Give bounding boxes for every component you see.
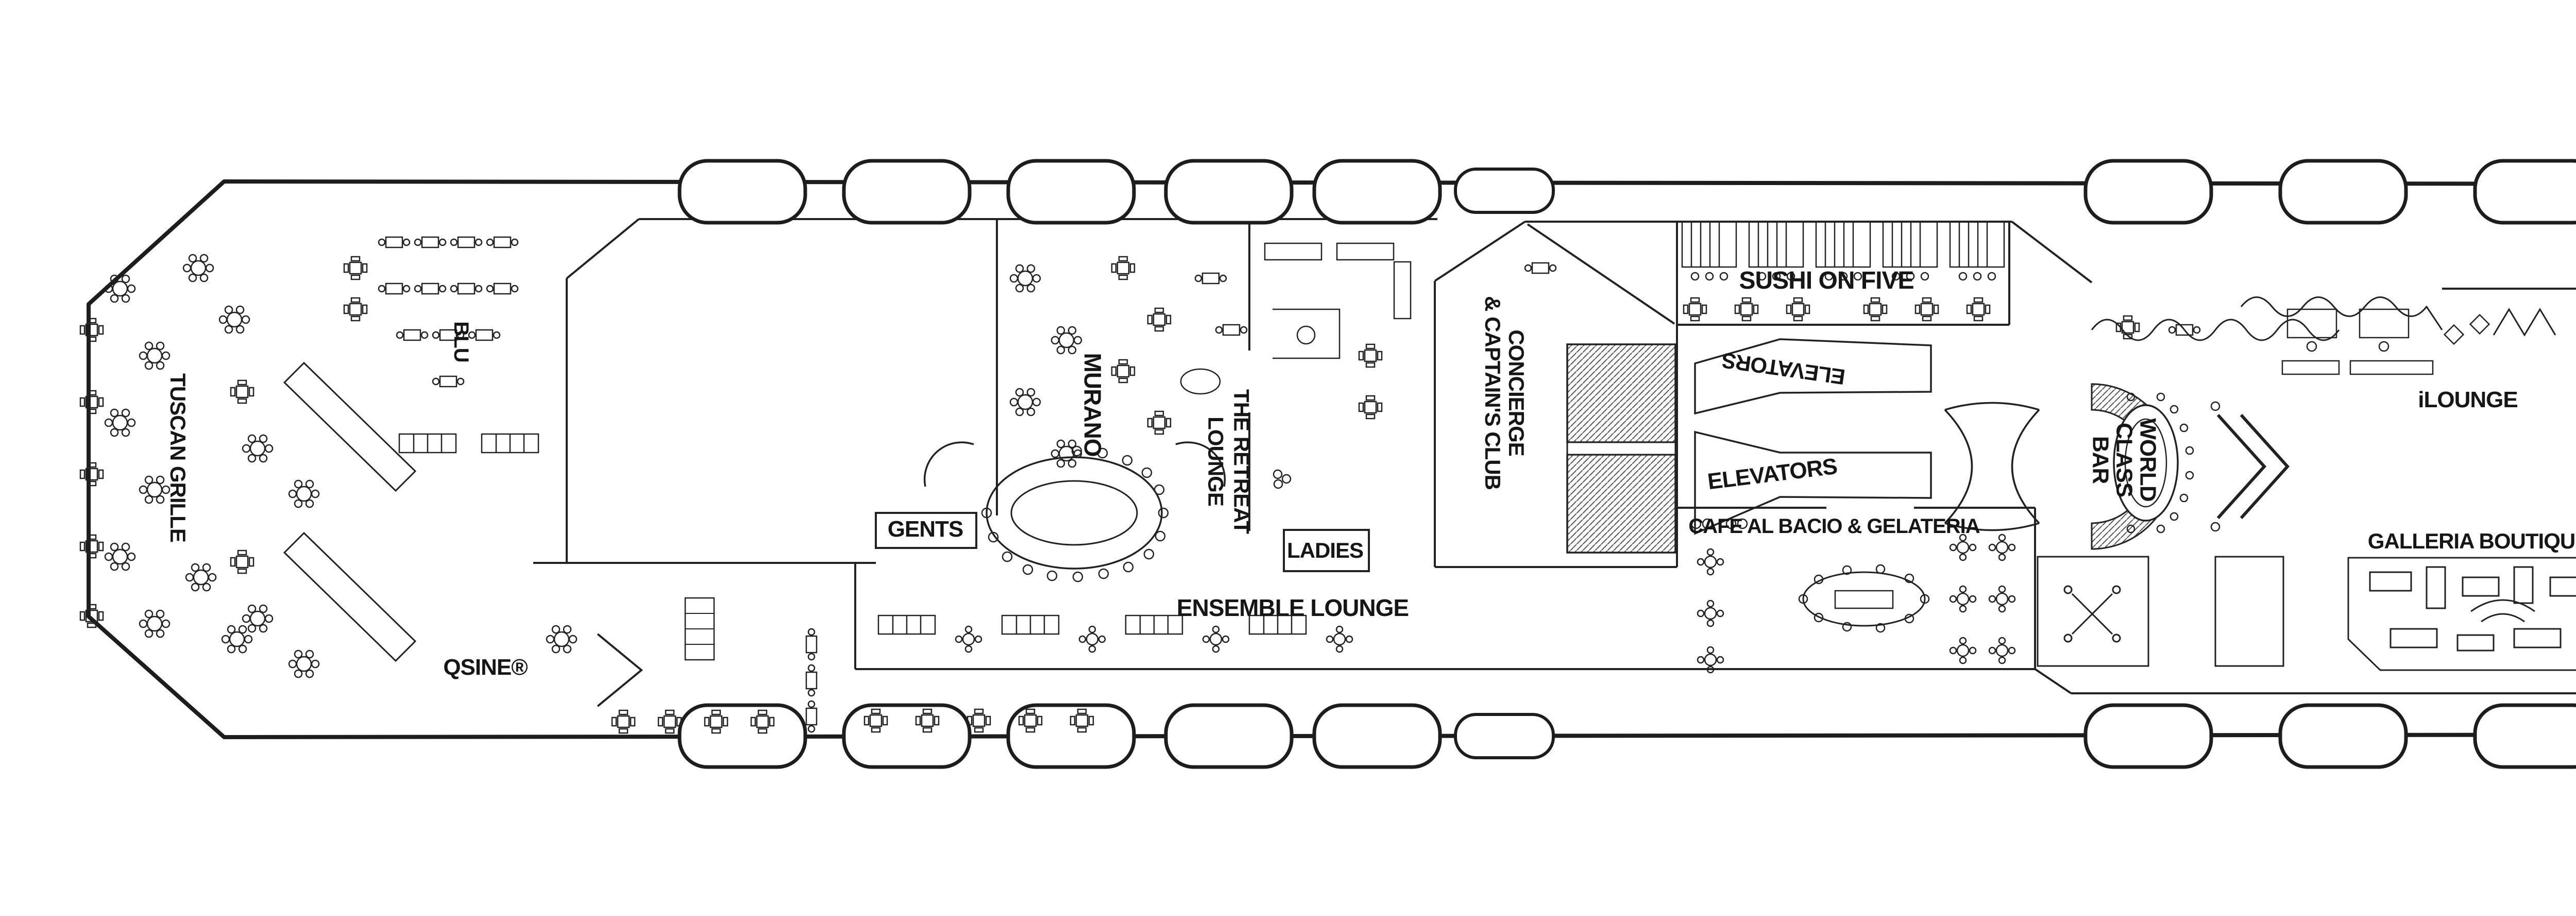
deck-plan-drawing — [0, 0, 2576, 916]
label-cafe-al-bacio: CAFE AL BACIO & GELATERIA — [1688, 516, 1979, 538]
label-ladies-aft: LADIES — [1287, 539, 1363, 562]
tender-boat — [1455, 169, 1553, 212]
label-galleria-boutiques-aft: GALLERIA BOUTIQUES — [2368, 530, 2576, 553]
cruise-deck-plan: TUSCAN GRILLE BLU QSINE® GENTS MURANO TH… — [0, 0, 2576, 916]
label-retreat-lounge: THE RETREAT LOUNGE — [1203, 389, 1254, 534]
label-blu: BLU — [450, 321, 471, 362]
label-gents-aft: GENTS — [888, 518, 963, 541]
label-qsine: QSINE® — [443, 656, 527, 679]
label-world-class-bar: WORLD CLASS BAR — [2088, 418, 2160, 501]
label-tuscan-grille: TUSCAN GRILLE — [166, 373, 189, 542]
hull-outline — [89, 181, 2576, 737]
label-concierge-captains-club: CONCIERGE & CAPTAIN'S CLUB — [1481, 296, 1528, 490]
label-ilounge: iLOUNGE — [2418, 388, 2517, 412]
label-murano: MURANO — [1080, 353, 1105, 457]
label-ensemble-lounge: ENSEMBLE LOUNGE — [1177, 596, 1409, 621]
tender-boat — [1455, 714, 1553, 758]
label-sushi-on-five: SUSHI ON FIVE — [1739, 268, 1913, 294]
